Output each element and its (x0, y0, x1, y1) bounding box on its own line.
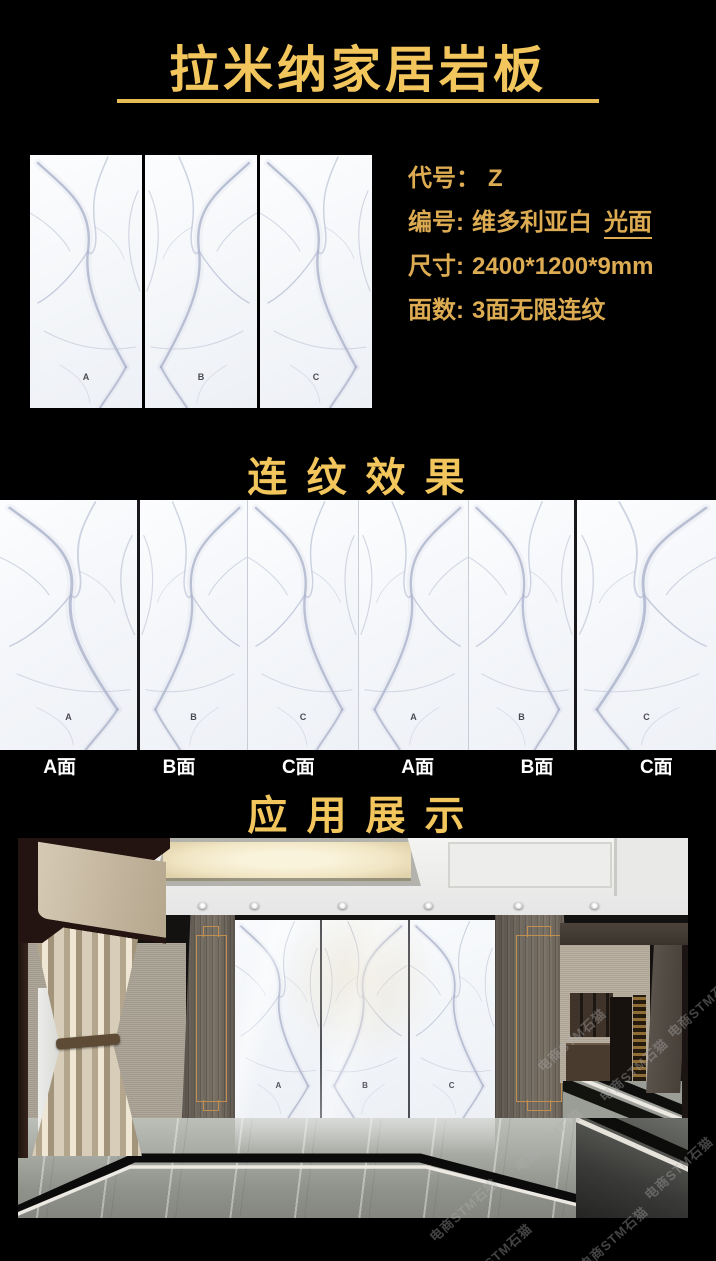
face-label: A面 (358, 752, 477, 779)
face-label-row: A面 B面 C面 A面 B面 C面 (0, 752, 716, 779)
application-heading: 应 用 展 示 (0, 783, 716, 841)
marble-veins-graphic (260, 155, 372, 408)
curtain-edge (18, 933, 28, 1158)
doorway-header-beam (560, 923, 688, 945)
gold-trim-frame (196, 935, 227, 1101)
spotlight-icon (250, 902, 259, 909)
left-wood-pilaster (182, 915, 235, 1118)
spotlight-icon (338, 902, 347, 909)
slab-letter: A (30, 372, 142, 382)
product-slab-c: C (260, 155, 372, 408)
ceiling-recessed-panel (448, 842, 612, 888)
marble-feature-wall: A B C (235, 920, 495, 1118)
watermark-text: 电商STM石猫 (459, 1219, 536, 1261)
spec-label: 面数: (408, 297, 464, 324)
spotlight-icon (198, 902, 207, 909)
wall-letter: A (235, 1081, 322, 1090)
ceiling-glow (163, 842, 411, 881)
face-label: B面 (477, 752, 596, 779)
spec-row-code: 代号：Z (408, 164, 708, 194)
marble-veins-graphic (30, 155, 142, 408)
face-label: C面 (597, 752, 716, 779)
section-letter: B (140, 712, 247, 722)
continuous-pattern-heading: 连 纹 效 果 (0, 445, 716, 503)
panel-section-a1: A (0, 500, 137, 750)
section-letter: A (359, 712, 468, 722)
product-slab-b: B (145, 155, 257, 408)
spec-finish-underlined: 光面 (604, 209, 652, 239)
wall-letter: B (322, 1081, 409, 1090)
spec-list: 代号：Z 编号:维多利亚白光面 尺寸:2400*1200*9mm 面数:3面无限… (408, 164, 708, 340)
spec-value: 3面无限连纹 (472, 297, 605, 324)
ceiling-light-tray (153, 838, 421, 886)
spec-label: 编号: (408, 209, 464, 236)
section-letter: B (469, 712, 574, 722)
poster-page: 拉米纳家居岩板 A B C 代号：Z 编号:维多利亚白光面 尺寸:2400*12… (0, 0, 716, 1261)
slab-letter: B (145, 372, 257, 382)
section-letter: C (577, 712, 716, 722)
product-slab-a: A (30, 155, 142, 408)
spec-row-number: 编号:维多利亚白光面 (408, 208, 708, 238)
application-room-render: A B C (18, 838, 688, 1218)
panel-section-b1: B (137, 500, 247, 750)
face-label: B面 (119, 752, 238, 779)
spec-row-size: 尺寸:2400*1200*9mm (408, 252, 708, 282)
title-underline (117, 99, 599, 103)
panel-section-c2: C (574, 500, 716, 750)
section-letter: C (248, 712, 358, 722)
spec-value: Z (488, 165, 503, 192)
page-title: 拉米纳家居岩板 (0, 30, 716, 102)
panel-section-b2: B (468, 500, 574, 750)
slab-letter: C (260, 372, 372, 382)
face-label: A面 (0, 752, 119, 779)
spec-label: 代号： (408, 165, 480, 192)
spotlight-icon (590, 902, 599, 909)
product-slab-group: A B C (30, 155, 372, 408)
continuous-panel: A B C A B C (0, 500, 716, 750)
hallway-interior (560, 945, 650, 1083)
marble-veins-graphic (145, 155, 257, 408)
spec-value: 维多利亚白 (472, 209, 592, 236)
panel-section-a2: A (358, 500, 468, 750)
curtain-valance (18, 838, 170, 943)
spotlight-icon (424, 902, 433, 909)
panel-section-c1: C (247, 500, 358, 750)
upper-cabinet (570, 993, 613, 1037)
ceiling-beam (614, 838, 688, 896)
shadow-edge (682, 945, 688, 1118)
spec-row-faces: 面数:3面无限连纹 (408, 296, 708, 326)
face-label: C面 (239, 752, 358, 779)
spec-label: 尺寸: (408, 253, 464, 280)
wall-letter: C (408, 1081, 495, 1090)
lower-cabinet (566, 1043, 612, 1083)
hall-floor-shadow (576, 1118, 688, 1218)
spec-value: 2400*1200*9mm (472, 253, 654, 280)
wall-letter-row: A B C (235, 1081, 495, 1090)
spotlight-icon (514, 902, 523, 909)
gold-trim-frame (516, 935, 562, 1101)
section-letter: A (0, 712, 137, 722)
